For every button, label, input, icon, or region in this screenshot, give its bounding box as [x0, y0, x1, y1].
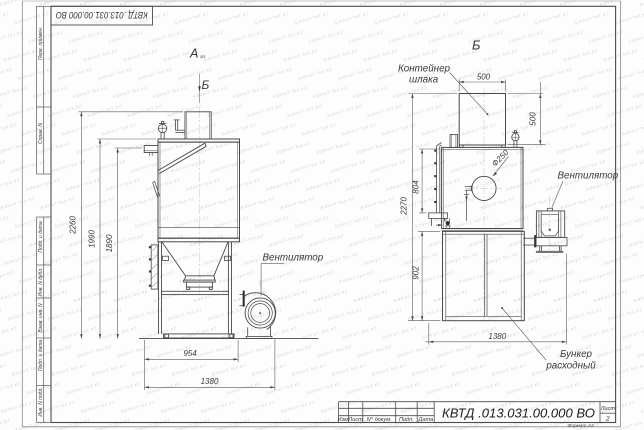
svg-text:Взам. инв. N: Взам. инв. N — [38, 303, 44, 333]
svg-text:Бункер: Бункер — [560, 349, 593, 360]
svg-text:расходный: расходный — [545, 361, 596, 372]
svg-text:Подп.: Подп. — [399, 417, 414, 423]
svg-text:Контейнер: Контейнер — [398, 64, 451, 75]
svg-text:гп: гп — [200, 54, 205, 59]
svg-text:1890: 1890 — [105, 234, 114, 252]
svg-text:А: А — [189, 47, 198, 61]
svg-text:2270: 2270 — [399, 197, 408, 216]
svg-text:Б: Б — [472, 38, 481, 53]
svg-text:шлака: шлака — [409, 75, 439, 86]
svg-text:2260: 2260 — [69, 216, 78, 235]
svg-text:Справ. N: Справ. N — [38, 123, 44, 144]
svg-text:Инв. N подл.: Инв. N подл. — [38, 387, 44, 416]
svg-text:Вентилятор: Вентилятор — [263, 253, 324, 264]
svg-text:N° докум.: N° докум. — [367, 417, 392, 423]
svg-text:Подп. и дата: Подп. и дата — [38, 340, 44, 372]
svg-text:1380: 1380 — [201, 377, 219, 386]
svg-text:1380: 1380 — [488, 332, 506, 341]
svg-text:КВТД .013.031.00.000 ВО: КВТД .013.031.00.000 ВО — [56, 10, 148, 20]
svg-text:Лист: Лист — [347, 417, 363, 423]
svg-text:902: 902 — [411, 266, 420, 280]
svg-text:Формат А3: Формат А3 — [567, 423, 594, 429]
svg-text:500: 500 — [477, 72, 491, 81]
svg-text:1990: 1990 — [87, 230, 96, 248]
svg-text:Инв. N дубл.: Инв. N дубл. — [38, 268, 44, 297]
svg-text:2: 2 — [605, 416, 610, 423]
svg-text:Подп. и дата: Подп. и дата — [38, 221, 44, 253]
svg-text:Вентилятор: Вентилятор — [558, 171, 619, 182]
svg-text:500: 500 — [529, 112, 538, 126]
svg-text:Дата: Дата — [417, 417, 433, 423]
svg-text:SidVinT-TeX.KZ: SidVinT-TeX.KZ — [639, 0, 644, 7]
svg-text:Перв. примен.: Перв. примен. — [38, 27, 44, 60]
svg-text:Б: Б — [202, 78, 210, 92]
svg-text:954: 954 — [183, 349, 197, 358]
svg-text:804: 804 — [411, 180, 420, 194]
svg-text:КВТД .013.031.00.000 ВО: КВТД .013.031.00.000 ВО — [442, 406, 595, 421]
svg-text:Лист: Лист — [600, 406, 616, 412]
